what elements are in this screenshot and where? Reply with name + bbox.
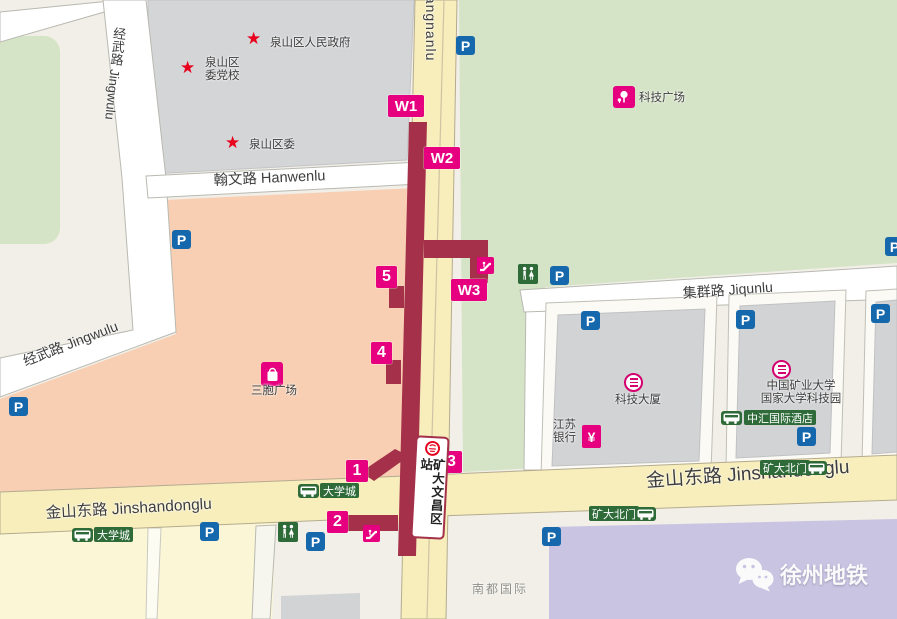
univ-park-line2: 国家大学科技园: [748, 393, 854, 406]
bus-stop-zhonghui-hotel: 中汇国际酒店: [744, 410, 816, 425]
star-icon: ★: [225, 134, 240, 151]
univ-park-line1: 中国矿业大学: [748, 380, 854, 393]
bank-line1: 江苏: [553, 419, 576, 432]
mall-icon: [261, 362, 283, 386]
parking-icon: P: [200, 522, 219, 541]
label-district-government: 泉山区人民政府: [270, 37, 351, 50]
label-sanbao-plaza: 三胞广场: [251, 385, 297, 398]
escalator-icon: [363, 525, 380, 542]
park-block: [0, 36, 60, 244]
bus-icon: [298, 484, 319, 498]
exit-badge-5: 5: [376, 266, 397, 288]
parking-icon: P: [456, 36, 475, 55]
park-icon: [613, 86, 635, 108]
parking-icon: P: [885, 237, 897, 256]
wechat-icon: [734, 556, 774, 592]
parking-icon: P: [581, 311, 600, 330]
parking-icon: P: [172, 230, 191, 249]
exit-badge-2: 2: [327, 511, 348, 533]
bus-icon: [635, 507, 656, 521]
label-nandu-international: 南都国际: [472, 583, 528, 596]
exit-badge-w1: W1: [388, 95, 424, 117]
base-map: [0, 0, 897, 619]
label-district-committee: 泉山区委: [249, 139, 295, 152]
exit-badge-4: 4: [371, 342, 392, 364]
party-school-line1: 泉山区: [205, 57, 240, 70]
bus-stop-kuangda-north: 矿大北门: [589, 506, 639, 521]
escalator-icon: [477, 257, 494, 274]
building-c: [872, 300, 897, 454]
metro-station-map: 经武路 Jingwulu 经武路 Jingwulu Jiefangnanlu 翰…: [0, 0, 897, 619]
exit-badge-w3: W3: [451, 279, 487, 301]
yellow-block-southwest: [0, 520, 276, 619]
label-party-school: 泉山区 委党校: [205, 57, 240, 83]
star-icon: ★: [246, 30, 261, 47]
parking-icon: P: [797, 427, 816, 446]
bus-icon: [806, 461, 827, 475]
bus-stop-daxuecheng: 大学城: [94, 527, 133, 542]
label-keji-tower: 科技大厦: [615, 394, 661, 407]
bus-icon: [721, 411, 742, 425]
exit-badge-w2: W2: [424, 147, 460, 169]
office-building-icon: [624, 373, 643, 392]
bank-line2: 银行: [553, 432, 576, 445]
label-jiangsu-bank: 江苏 银行: [553, 419, 576, 445]
station-label-box: 矿大文昌区站: [410, 435, 449, 540]
party-school-line2: 委党校: [205, 70, 240, 83]
station-name: 矿大文昌区站: [415, 457, 444, 538]
bus-icon: [72, 528, 93, 542]
toilet-icon: [278, 522, 298, 542]
bus-stop-kuangda-north: 矿大北门: [760, 460, 810, 475]
building-bottom: [281, 593, 360, 619]
office-building-icon: [772, 360, 791, 379]
parking-icon: P: [306, 532, 325, 551]
watermark: 徐州地铁: [734, 556, 868, 592]
parking-icon: P: [542, 527, 561, 546]
label-univ-science-park: 中国矿业大学 国家大学科技园: [748, 380, 854, 406]
label-keji-plaza: 科技广场: [639, 92, 685, 105]
exit-5-stub: [389, 286, 404, 308]
watermark-text: 徐州地铁: [780, 558, 868, 590]
parking-icon: P: [736, 310, 755, 329]
bus-stop-daxuecheng: 大学城: [320, 483, 359, 498]
bank-icon: ¥: [582, 425, 601, 448]
road-label-jiefangnanlu: Jiefangnanlu: [423, 0, 439, 90]
parking-icon: P: [9, 397, 28, 416]
parking-icon: P: [550, 266, 569, 285]
toilet-icon: [518, 264, 538, 284]
star-icon: ★: [180, 59, 195, 76]
metro-logo-icon: [423, 440, 441, 458]
parking-icon: P: [871, 304, 890, 323]
exit-badge-1: 1: [346, 460, 368, 482]
